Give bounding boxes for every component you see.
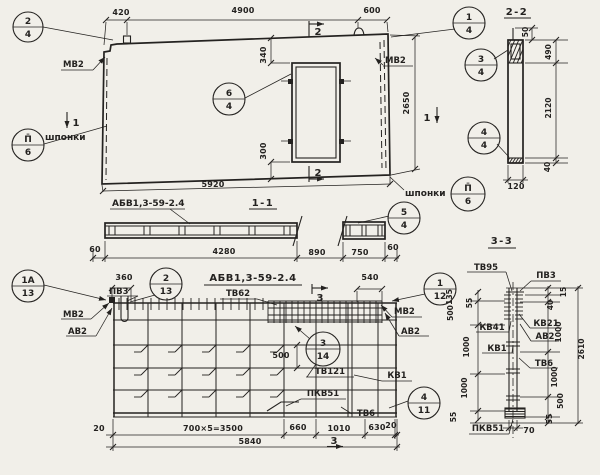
dim-540: 540 <box>361 273 379 282</box>
dim-50: 50 <box>521 27 530 37</box>
section-mark-2-bottom: 2 <box>309 166 324 182</box>
svg-text:ТВ6: ТВ6 <box>357 409 375 419</box>
s22-dimension-lines <box>503 28 568 183</box>
callout-3-14: 3 14 <box>295 326 340 366</box>
svg-text:4: 4 <box>401 221 407 231</box>
callout-1-4: 1 4 <box>391 7 485 39</box>
svg-text:4: 4 <box>478 68 484 78</box>
callout-p-6-left: П̄ 6 <box>12 126 107 161</box>
engineering-drawing: 420 4900 600 5920 2650 340 300 МВ2 МВ2 1… <box>0 0 600 475</box>
svg-text:АВ2: АВ2 <box>401 327 420 337</box>
section-2-2-title: 2-2 <box>506 7 529 18</box>
svg-text:13: 13 <box>22 289 35 299</box>
label-mv2-right: МВ2 <box>381 305 422 317</box>
svg-text:4: 4 <box>421 393 427 403</box>
dim-2120: 2120 <box>544 98 553 119</box>
svg-text:КВ1: КВ1 <box>387 371 406 381</box>
mesh-grid <box>113 298 397 417</box>
section-mark-2-top: 2 <box>309 21 324 38</box>
svg-text:АВ2: АВ2 <box>68 327 87 337</box>
section-3-3-title: 3-3 <box>491 236 514 247</box>
svg-text:1А: 1А <box>21 276 34 286</box>
dim-40-right: 40 <box>546 300 555 310</box>
dim-15: 15 <box>559 287 568 297</box>
dim-20-left: 20 <box>93 424 105 433</box>
svg-text:4: 4 <box>481 128 487 138</box>
dim-60-left: 60 <box>89 245 101 254</box>
callout-1a-13: 1А 13 <box>12 270 106 302</box>
dim-55-top-left: 55 <box>465 298 474 308</box>
svg-text:ТВ6: ТВ6 <box>535 359 553 369</box>
svg-text:3: 3 <box>478 55 484 65</box>
dim-135: 135 <box>445 289 454 305</box>
svg-text:ПКВ51: ПКВ51 <box>472 424 504 434</box>
svg-text:АВ2: АВ2 <box>536 332 555 342</box>
section-mark-1-left: 1 <box>67 112 80 129</box>
svg-text:3: 3 <box>331 436 338 447</box>
lifting-lug-right <box>354 28 364 35</box>
svg-text:КВ41: КВ41 <box>479 323 504 333</box>
svg-text:4: 4 <box>226 102 232 112</box>
svg-text:ПКВ51: ПКВ51 <box>307 389 339 399</box>
svg-text:МВ2: МВ2 <box>385 56 406 66</box>
label-kv41: КВ41 <box>476 321 511 333</box>
dim-4280: 4280 <box>212 247 235 256</box>
lifting-lug-left <box>124 36 131 43</box>
callout-4-4: 4 4 <box>468 122 509 157</box>
label-kv21: КВ21 <box>519 314 562 329</box>
dim-1000-left-b: 1000 <box>460 378 469 399</box>
section-1-1-title: 1-1 <box>252 198 275 209</box>
svg-text:13: 13 <box>160 287 173 297</box>
svg-text:1: 1 <box>466 13 472 23</box>
reinforcement-plan: АБВ1,3-59-2.4 ТВ62 360 540 500 20 700×5=… <box>12 268 456 451</box>
svg-text:П̄: П̄ <box>464 182 472 194</box>
svg-text:4: 4 <box>481 141 487 151</box>
keyway-dashed-lines <box>106 40 386 180</box>
svg-text:2: 2 <box>315 27 322 38</box>
label-tv62: ТВ62 <box>226 289 250 299</box>
dim-300: 300 <box>259 142 268 160</box>
dim-500-left: 500 <box>446 305 455 321</box>
dim-420: 420 <box>112 8 130 17</box>
svg-text:ТВ121: ТВ121 <box>315 367 345 377</box>
callout-5-4: 5 4 <box>358 202 420 234</box>
svg-text:6: 6 <box>25 148 31 158</box>
svg-text:6: 6 <box>226 89 232 99</box>
svg-text:МВ2: МВ2 <box>63 60 84 70</box>
section-mark-3-bottom: 3 <box>327 436 343 447</box>
dim-490: 490 <box>544 44 553 60</box>
label-tv121: ТВ121 <box>306 364 354 377</box>
svg-text:КВ1: КВ1 <box>487 344 506 354</box>
s33-column <box>504 282 525 438</box>
plan-view: 420 4900 600 5920 2650 340 300 МВ2 МВ2 1… <box>12 6 485 211</box>
svg-text:МВ2: МВ2 <box>394 307 415 317</box>
svg-text:3: 3 <box>320 339 326 349</box>
label-kv1: КВ1 <box>354 371 412 381</box>
section-1-1: АБВ1,3-59-2.4 1-1 60 4280 890 750 60 5 4 <box>89 198 420 262</box>
dim-1000-left-a: 1000 <box>462 337 471 358</box>
dim-55-bottom-left: 55 <box>449 412 458 422</box>
svg-text:5: 5 <box>401 208 407 218</box>
callout-6-4: 6 4 <box>213 74 291 115</box>
label-mv2-left: МВ2 <box>61 303 109 320</box>
dim-340: 340 <box>259 46 268 64</box>
dim-500-right: 500 <box>556 393 565 409</box>
bent-bar <box>267 402 299 411</box>
dim-500: 500 <box>272 351 290 360</box>
callout-3-4: 3 4 <box>465 49 508 81</box>
section-3-3: 3-3 135 55 500 1000 1000 55 15 40 1000 1… <box>445 236 586 438</box>
svg-text:ПВ3: ПВ3 <box>536 271 556 281</box>
callout-2-13: 2 13 <box>130 268 182 302</box>
svg-text:КВ21: КВ21 <box>533 319 558 329</box>
svg-text:2: 2 <box>25 17 31 27</box>
reinf-title: АБВ1,3-59-2.4 <box>209 273 296 284</box>
label-tv95: ТВ95 <box>467 263 512 291</box>
dim-5840: 5840 <box>238 437 261 446</box>
s11-strip <box>105 216 385 246</box>
section-mark-1-right: 1 <box>424 107 437 124</box>
s33-dimension-lines <box>470 286 583 431</box>
dim-700x5: 700×5=3500 <box>183 424 243 433</box>
label-mv2-left: МВ2 <box>61 57 105 70</box>
svg-text:2: 2 <box>163 274 169 284</box>
label-shponki-right: шпонки <box>405 189 446 199</box>
svg-text:1: 1 <box>73 118 80 129</box>
dim-600: 600 <box>363 6 381 15</box>
dim-40: 40 <box>543 162 552 172</box>
dim-60-right: 60 <box>387 243 399 252</box>
dim-660: 660 <box>289 423 307 432</box>
dim-5920: 5920 <box>201 180 224 189</box>
dim-1000-right-b: 1000 <box>550 367 559 388</box>
svg-text:МВ2: МВ2 <box>63 310 84 320</box>
panel-outline <box>102 34 390 184</box>
dim-4900: 4900 <box>231 6 254 15</box>
svg-text:4: 4 <box>466 26 472 36</box>
svg-text:П̄: П̄ <box>24 133 32 145</box>
label-pkv51: ПКВ51 <box>469 419 513 434</box>
svg-text:11: 11 <box>418 406 431 416</box>
reinf-dimension-lines <box>106 288 400 451</box>
dim-750: 750 <box>351 248 369 257</box>
door-opening <box>281 63 351 162</box>
svg-text:1: 1 <box>437 279 443 289</box>
plan-dimension-lines <box>102 20 420 192</box>
svg-text:2: 2 <box>315 168 322 179</box>
dim-1010: 1010 <box>327 424 350 433</box>
s33-combs-ties <box>504 295 525 417</box>
label-shponki-left: шпонки <box>45 133 86 143</box>
label-tv6: ТВ6 <box>519 358 558 369</box>
dim-120: 120 <box>507 182 525 191</box>
svg-text:4: 4 <box>25 30 31 40</box>
callout-2-4: 2 4 <box>13 12 113 42</box>
svg-text:14: 14 <box>317 352 330 362</box>
dim-70: 70 <box>523 426 535 435</box>
dim-20-right: 20 <box>385 421 397 430</box>
dim-2610: 2610 <box>577 339 586 360</box>
s11-label: АБВ1,3-59-2.4 <box>112 199 185 209</box>
dim-890: 890 <box>308 248 326 257</box>
dim-360: 360 <box>115 273 133 282</box>
svg-text:ТВ95: ТВ95 <box>474 263 498 273</box>
svg-text:1: 1 <box>424 113 431 124</box>
dim-630: 630 <box>368 423 386 432</box>
dim-2650: 2650 <box>402 91 411 114</box>
svg-text:6: 6 <box>465 197 471 207</box>
svg-text:3: 3 <box>317 293 324 304</box>
